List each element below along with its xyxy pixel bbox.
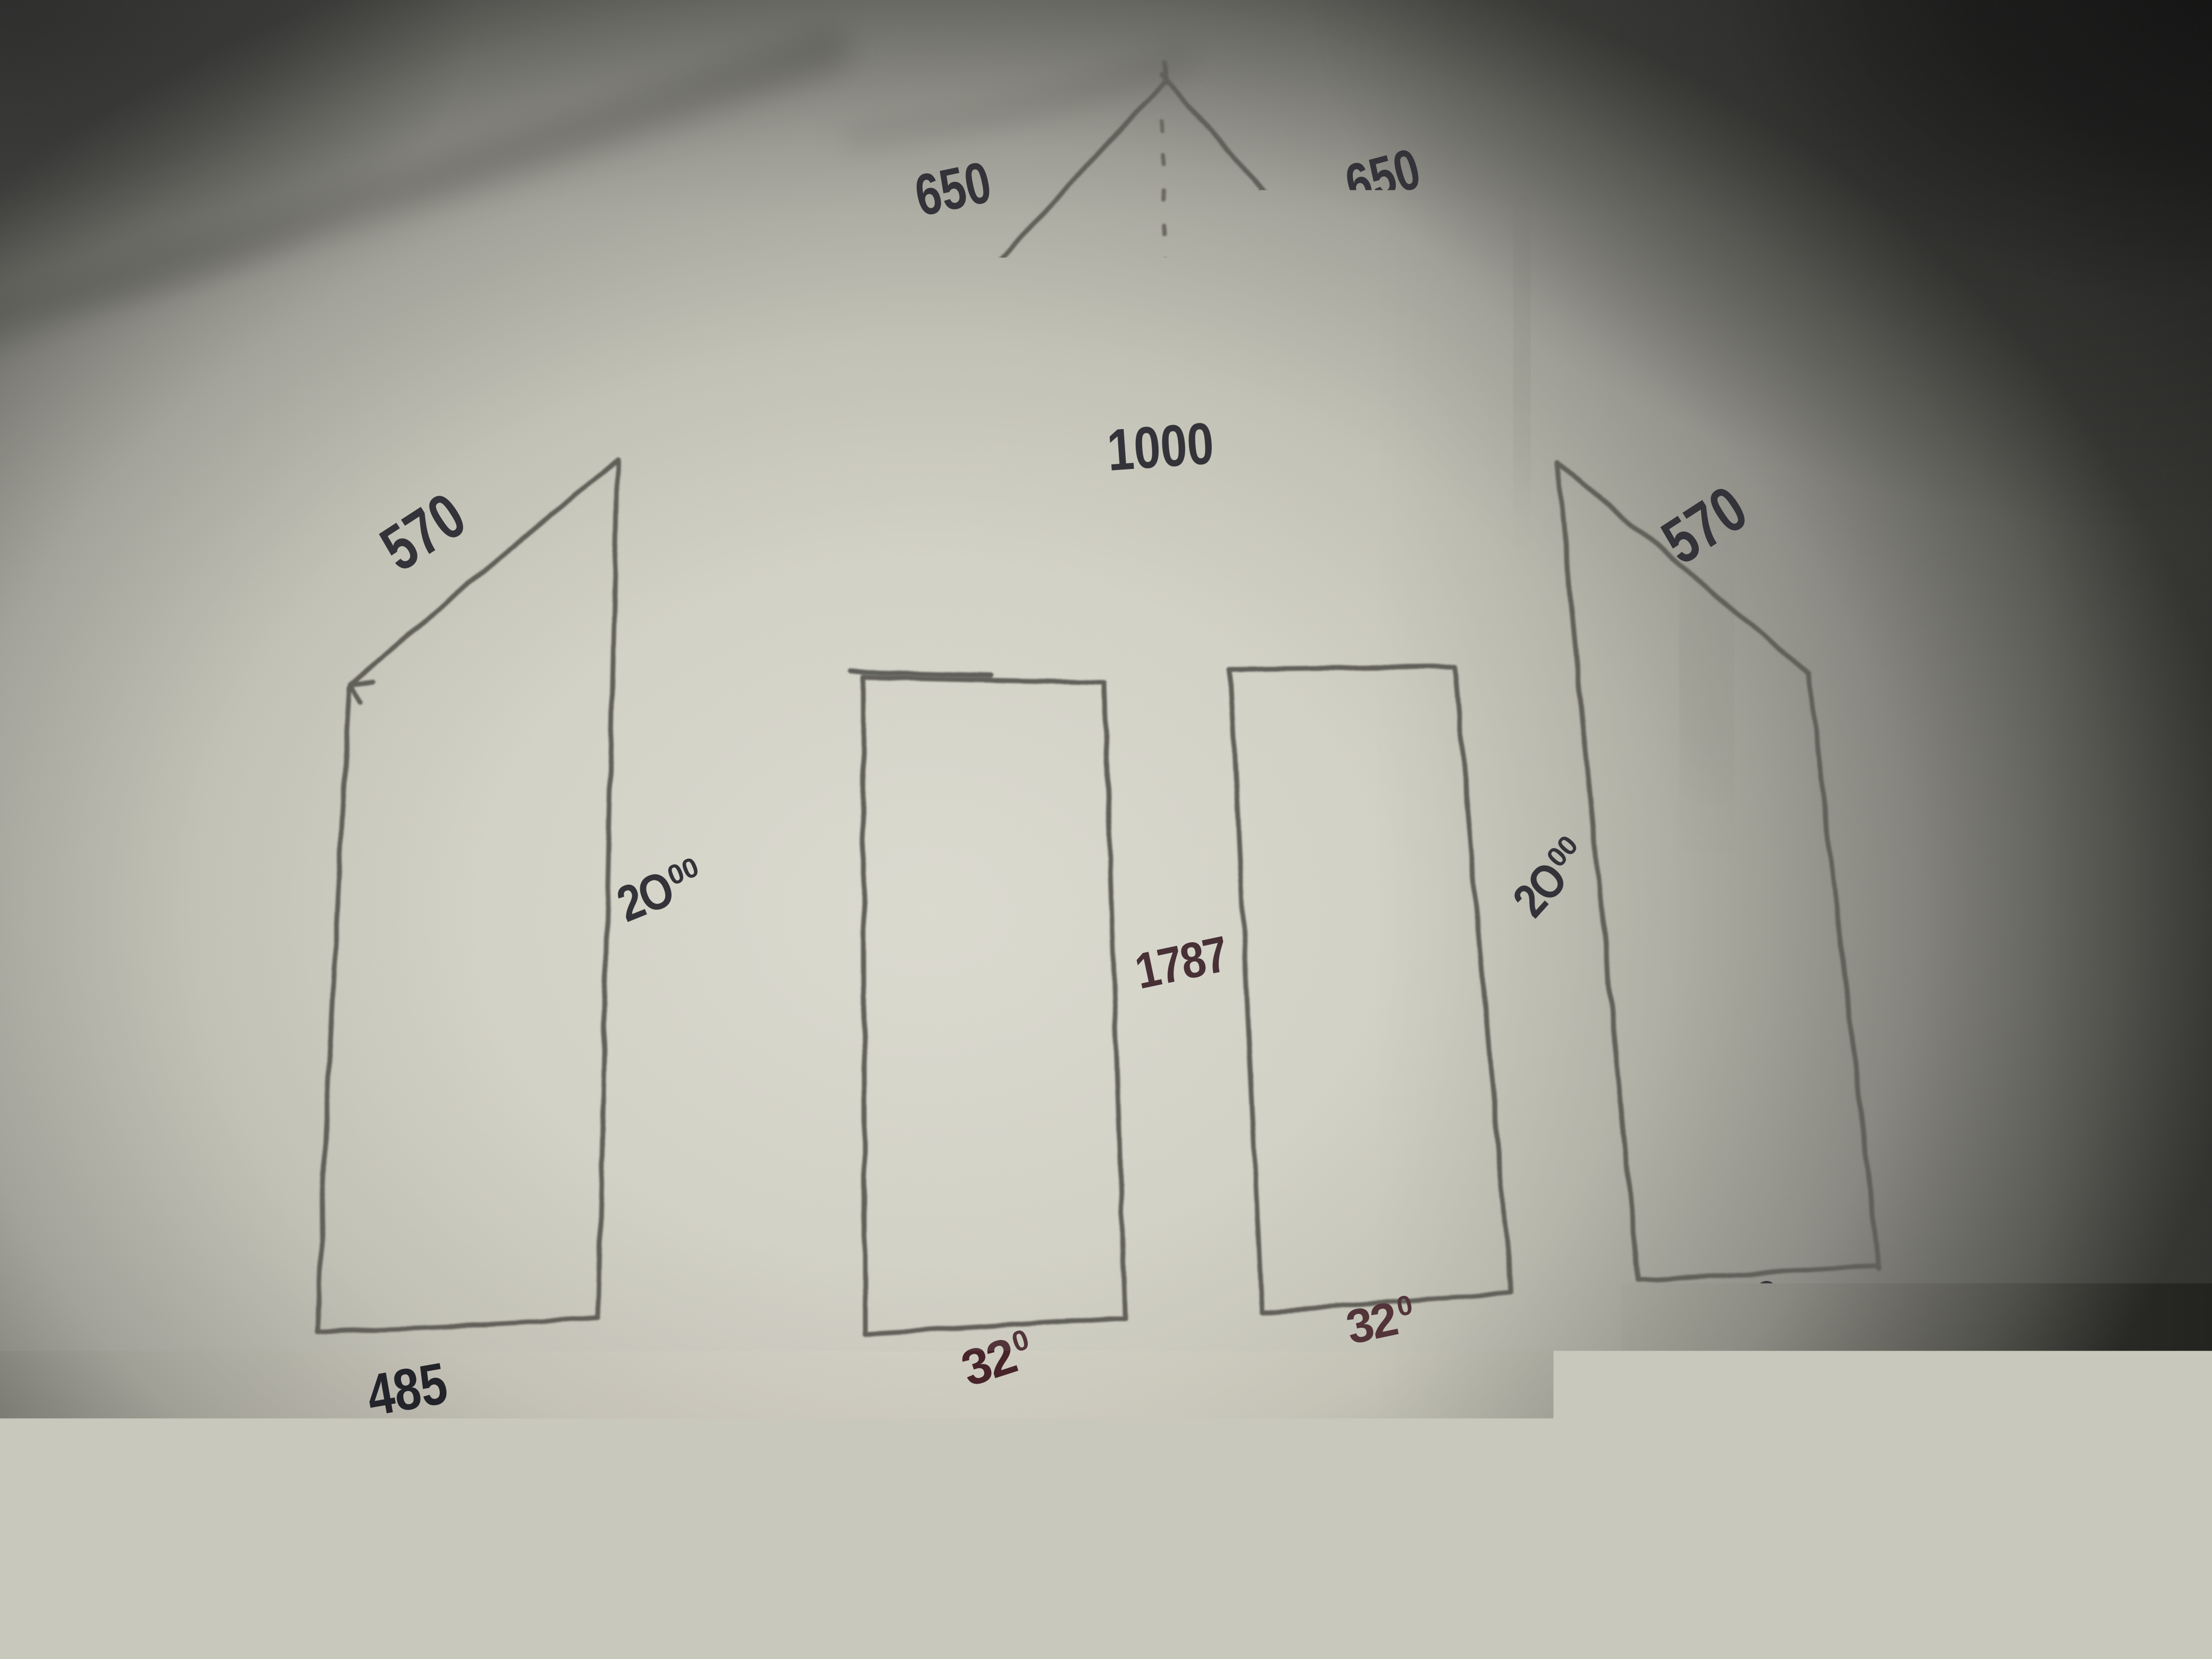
svg-text:BARTLETT: BARTLETT [719, 1452, 1183, 1627]
svg-text:480: 480 [1701, 1269, 1784, 1340]
svg-text:485: 485 [362, 1351, 452, 1429]
svg-text:650: 650 [909, 149, 996, 229]
svg-text:1787: 1787 [1130, 926, 1232, 1000]
svg-text:570: 570 [1649, 472, 1759, 578]
svg-text:650: 650 [1339, 137, 1427, 217]
svg-text:?: ? [1209, 1465, 1279, 1586]
svg-text:1000: 1000 [1105, 411, 1216, 483]
svg-text:370: 370 [1087, 249, 1161, 314]
svg-text:0: 0 [1394, 1289, 1415, 1323]
svg-text:570: 570 [368, 479, 477, 585]
